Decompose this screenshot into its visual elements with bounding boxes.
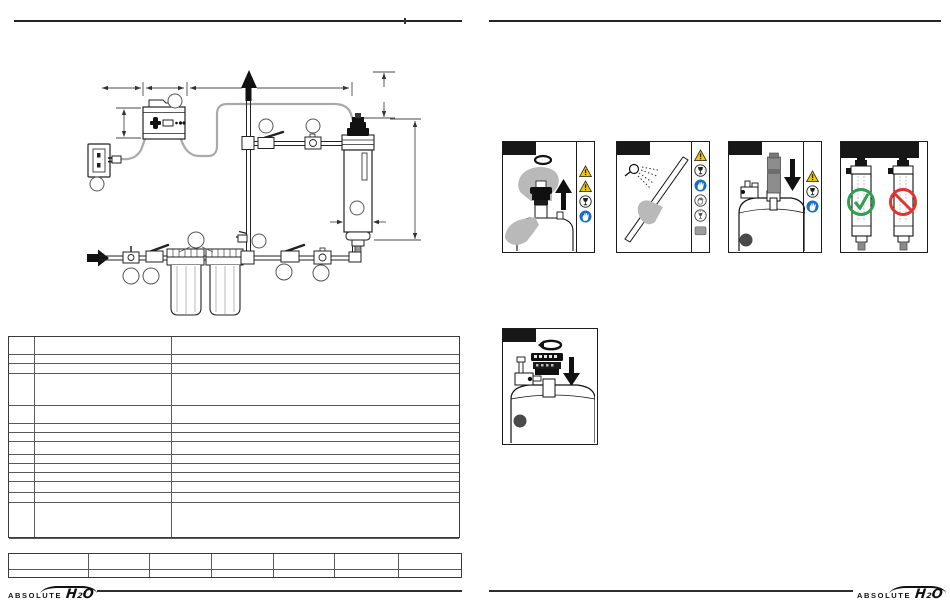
top-ball-valve bbox=[258, 132, 283, 149]
lamp-plug-assembly bbox=[531, 353, 563, 375]
wall-outlet bbox=[88, 144, 121, 177]
riser-tee bbox=[241, 137, 254, 265]
port-cap bbox=[740, 234, 753, 247]
table-row bbox=[9, 442, 459, 455]
brand-logo-right: ABSOLUTE H₂O bbox=[857, 583, 943, 601]
soft-cloth-icon bbox=[694, 224, 707, 237]
no-bare-hands-icon bbox=[694, 194, 707, 207]
table-row bbox=[9, 473, 459, 482]
brand-logo-left: ABSOLUTE H₂O bbox=[8, 583, 94, 601]
title-block-table bbox=[8, 553, 462, 578]
down-arrow bbox=[784, 177, 801, 191]
water-inlet-arrow bbox=[87, 250, 109, 267]
broken-glass-icon bbox=[694, 209, 707, 222]
fragile-glass-icon bbox=[694, 164, 707, 177]
table-row bbox=[9, 464, 459, 473]
panel-rinse-quartz-sleeve bbox=[616, 141, 710, 253]
table-row bbox=[9, 493, 459, 503]
check-valve-bottom bbox=[314, 248, 331, 264]
wear-gloves-icon bbox=[579, 210, 592, 223]
table-column-divider bbox=[334, 554, 335, 577]
removed-nut bbox=[535, 156, 551, 164]
drain-fitting bbox=[352, 240, 364, 246]
table-column-divider bbox=[273, 554, 274, 577]
pull-lamp-plug-art bbox=[503, 143, 577, 252]
table-column-divider bbox=[88, 554, 89, 577]
h2o-mark: H₂O bbox=[65, 588, 94, 601]
lamp-plug bbox=[534, 200, 548, 205]
safety-icon-strip bbox=[691, 142, 709, 252]
elbow-fitting bbox=[349, 252, 361, 262]
warning-icon bbox=[694, 149, 707, 162]
fragile-glass-icon bbox=[806, 185, 819, 198]
table-row bbox=[9, 364, 459, 374]
table-column-divider bbox=[34, 337, 35, 537]
table-column-divider bbox=[398, 554, 399, 577]
unit-correct bbox=[846, 155, 874, 250]
sample-valve bbox=[236, 232, 247, 243]
table-row bbox=[9, 337, 459, 355]
table-row bbox=[9, 374, 459, 406]
inlet-fitting bbox=[123, 246, 139, 263]
outlet-up-arrow bbox=[241, 70, 257, 88]
installation-diagram bbox=[70, 55, 476, 327]
panel-insert-uv-lamp bbox=[728, 141, 822, 253]
wear-gloves-icon bbox=[806, 200, 819, 213]
table-column-divider bbox=[211, 554, 212, 577]
chamber-clamp bbox=[543, 379, 555, 397]
table-row bbox=[9, 355, 459, 364]
outlet-ball-valve bbox=[281, 245, 304, 262]
left-page-top-rule bbox=[14, 20, 462, 22]
right-page-top-rule bbox=[489, 20, 941, 22]
right-page-bottom-rule bbox=[489, 590, 853, 592]
table-column-divider bbox=[149, 554, 150, 577]
port-cap bbox=[514, 415, 527, 428]
uv-lamp bbox=[768, 157, 781, 193]
table-row bbox=[9, 433, 459, 442]
refit-plug-art bbox=[503, 331, 595, 444]
manual-page: ABSOLUTE H₂O ABSOLUTE H₂O bbox=[0, 0, 950, 609]
panel-refit-lamp-plug bbox=[502, 328, 598, 445]
h2o-mark: H₂O bbox=[914, 588, 943, 601]
orientation-art bbox=[841, 142, 925, 252]
uv-chamber bbox=[342, 113, 374, 252]
filter-housing-1 bbox=[167, 249, 204, 315]
warning-icon bbox=[806, 170, 819, 183]
wear-gloves-icon bbox=[694, 179, 707, 192]
top-check-valve bbox=[305, 134, 321, 149]
rinse-sleeve-art bbox=[617, 143, 692, 252]
power-plug bbox=[112, 156, 121, 163]
down-arrow bbox=[563, 373, 580, 386]
safety-icon-strip bbox=[803, 142, 821, 252]
table-row-divider bbox=[9, 569, 461, 570]
insert-lamp-art bbox=[729, 143, 805, 252]
spray-head bbox=[630, 165, 639, 174]
rule-tick bbox=[404, 18, 406, 24]
water-spray bbox=[638, 167, 658, 188]
warning-icon bbox=[579, 165, 592, 178]
unit-incorrect bbox=[888, 155, 916, 250]
fragile-glass-icon bbox=[579, 195, 592, 208]
inlet-ball-valve bbox=[146, 245, 168, 262]
filter-housing-2 bbox=[206, 249, 243, 315]
table-column-divider bbox=[171, 337, 172, 537]
panel-mounting-orientation bbox=[840, 141, 928, 253]
parts-table bbox=[8, 336, 460, 538]
left-page-bottom-rule bbox=[97, 590, 462, 592]
table-row bbox=[9, 424, 459, 433]
dimension-lines bbox=[102, 72, 421, 240]
table-row bbox=[9, 406, 459, 424]
safety-icon-strip bbox=[576, 142, 594, 252]
table-row bbox=[9, 503, 459, 539]
lamp-connector bbox=[347, 113, 369, 136]
table-row bbox=[9, 455, 459, 464]
outlet-up-arrow-stem bbox=[246, 88, 252, 101]
table-row bbox=[9, 482, 459, 493]
warning-icon bbox=[579, 180, 592, 193]
panel-pull-lamp-plug bbox=[502, 141, 595, 253]
